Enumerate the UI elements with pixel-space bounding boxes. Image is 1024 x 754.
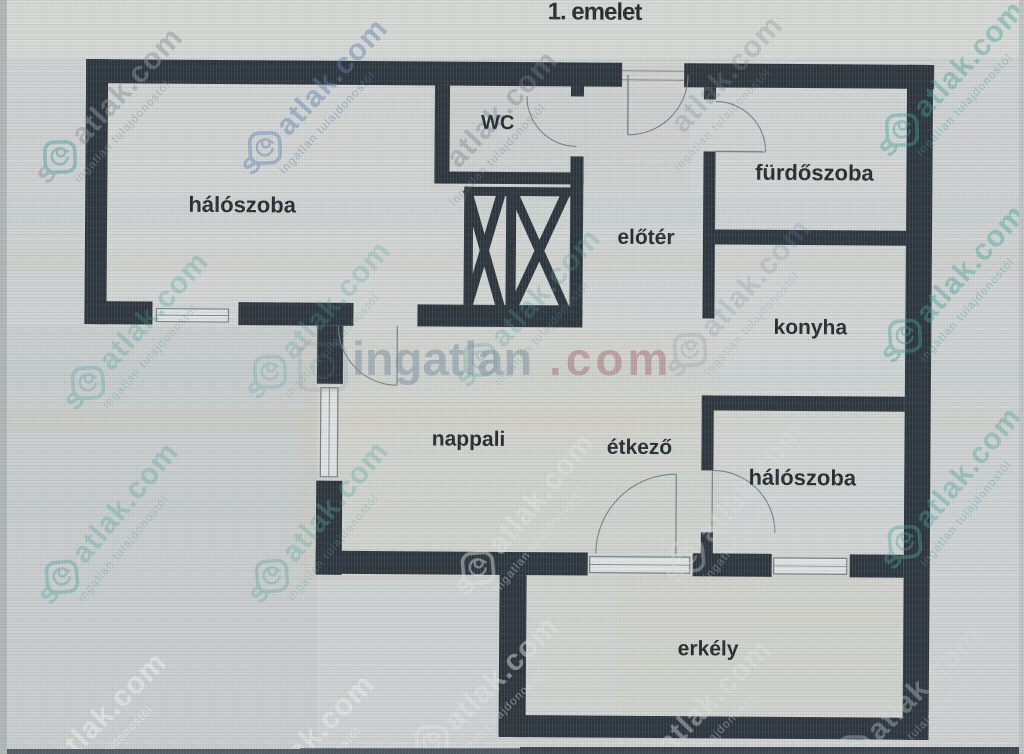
- svg-text:WC: WC: [481, 112, 514, 134]
- svg-text:1. emelet: 1. emelet: [548, 0, 643, 26]
- svg-text:nappali: nappali: [432, 427, 506, 451]
- svg-text:konyha: konyha: [774, 316, 848, 340]
- svg-text:fürdőszoba: fürdőszoba: [755, 160, 874, 186]
- svg-text:.com: .com: [549, 333, 672, 385]
- svg-text:ingatlan: ingatlan: [352, 332, 532, 385]
- svg-text:előtér: előtér: [617, 226, 674, 249]
- svg-text:étkező: étkező: [607, 436, 673, 459]
- svg-text:erkély: erkély: [678, 637, 739, 660]
- svg-text:hálószoba: hálószoba: [748, 465, 857, 491]
- svg-text:hálószoba: hálószoba: [188, 192, 297, 218]
